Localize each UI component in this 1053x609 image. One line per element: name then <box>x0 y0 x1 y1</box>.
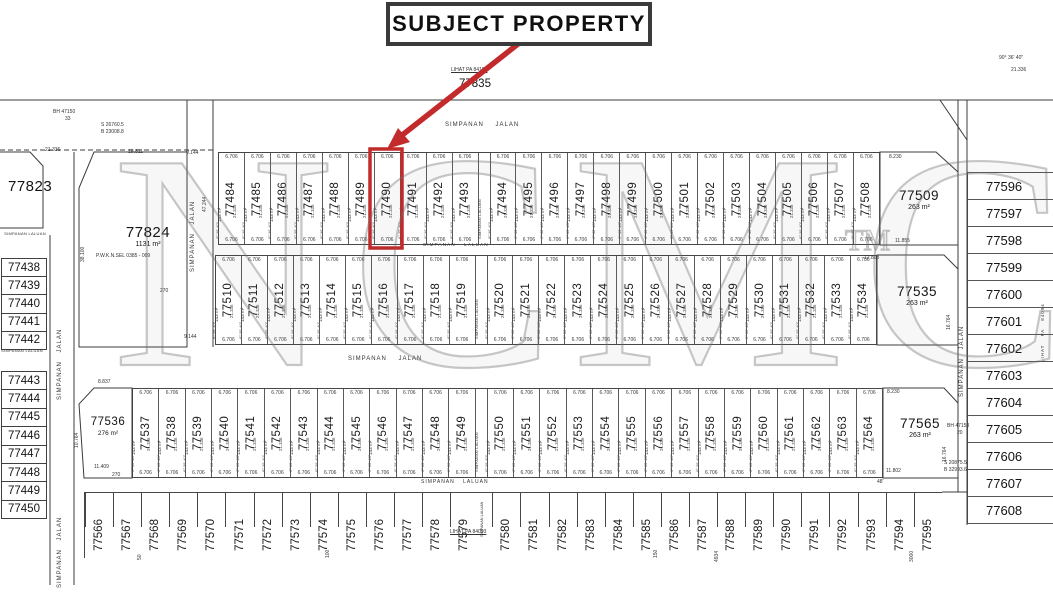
lot-cell: 77592 <box>829 493 857 558</box>
lot-width-top: 6.706 <box>488 257 513 263</box>
lot-number: 77580 <box>500 519 512 551</box>
lot-77823-label: 77823 <box>2 178 88 195</box>
map-annotation: BH 47153 <box>947 423 969 429</box>
lot-cell: 77595 <box>914 493 942 558</box>
map-annotation: 8.230 <box>887 389 900 395</box>
lot-tick <box>633 493 634 527</box>
lot-depth: 21.336 <box>817 438 822 451</box>
lot-width-top: 6.706 <box>857 390 882 396</box>
left-lane-label-b: SIMPANAN LALUAN <box>0 348 44 354</box>
right-column-lot: 77606 <box>967 442 1053 470</box>
map-annotation: LIHAT PA 84101 <box>451 67 487 73</box>
lot-number: 77590 <box>781 519 793 551</box>
lot-width-bottom: 6.706 <box>672 237 697 243</box>
lot-width-top: 6.706 <box>725 390 750 396</box>
lot-tick <box>661 493 662 527</box>
lot-width-top: 6.706 <box>398 257 423 263</box>
lot-width-top: 6.706 <box>591 257 616 263</box>
lot-area: 143 m² <box>236 441 241 455</box>
lot-width-bottom: 6.706 <box>698 237 723 243</box>
lot-width-top: 6.706 <box>593 390 618 396</box>
lot-tick <box>745 493 746 527</box>
right-column-lot: 77603 <box>967 361 1053 389</box>
lot-cell: 77584 <box>605 493 633 558</box>
lot-tick <box>85 493 86 527</box>
lot-number: 77606 <box>986 449 1022 464</box>
map-annotation: S 26760.5 <box>101 122 124 128</box>
left-column-lot: 77444 <box>1 389 47 408</box>
lot-depth: 21.336 <box>580 438 585 451</box>
lot-area: 143 m² <box>745 308 750 322</box>
lot-depth: 21.336 <box>385 305 390 318</box>
subject-property-label: SUBJECT PROPERTY <box>392 11 646 37</box>
lot-tick <box>829 493 830 527</box>
lot-width-top: 6.706 <box>776 154 801 160</box>
lot-number: 77571 <box>234 519 246 551</box>
lot-width-top: 6.706 <box>542 154 567 160</box>
map-annotation: 21.336 <box>1011 67 1026 73</box>
lot-width-top: 6.706 <box>750 154 775 160</box>
lot-cell: 77582 <box>549 493 577 558</box>
lot-area: 143 m² <box>849 308 854 322</box>
lot-number: 77582 <box>557 519 569 551</box>
lot-tick <box>577 493 578 527</box>
lot-depth: 21.336 <box>146 438 151 451</box>
lot-cell: 77586 <box>661 493 689 558</box>
lot-strip-row3: 6.70677537143 m²21.3366° 35' 40"6.7066.7… <box>132 388 883 478</box>
lot-width-top: 6.706 <box>619 390 644 396</box>
lot-width-top: 6.706 <box>773 257 798 263</box>
lot-cell: 6.70677547143 m²21.3366° 35' 40"6.706 <box>397 389 423 477</box>
lot-cell: 6.70677555143 m²21.3366° 35' 40"6.706 <box>619 389 645 477</box>
lot-number: 77585 <box>641 519 653 551</box>
map-annotation: 21.336 <box>45 147 60 153</box>
lot-width-bottom: 6.706 <box>594 237 619 243</box>
lot-depth: 21.336 <box>527 438 532 451</box>
lot-depth: 21.336 <box>526 305 531 318</box>
lot-area: 143 m² <box>292 308 297 322</box>
lot-number: 77603 <box>986 368 1022 383</box>
lot-number: 77586 <box>669 519 681 551</box>
lot-area: 143 m² <box>184 441 189 455</box>
lot-number: 77581 <box>528 519 540 551</box>
lot-depth: 21.336 <box>763 205 768 218</box>
lot-depth: 21.336 <box>307 305 312 318</box>
lot-width-top: 6.706 <box>491 154 516 160</box>
lot-width-bottom: 6.706 <box>238 470 263 476</box>
left-column-lot: 77440 <box>1 294 47 313</box>
lot-width-top: 6.706 <box>133 390 158 396</box>
lot-area: 143 m² <box>644 208 649 222</box>
lot-tick <box>689 493 690 527</box>
lot-width-top: 6.706 <box>427 154 452 160</box>
lot-depth: 21.336 <box>554 438 559 451</box>
lane-label-2: SIMPANAN LALUAN <box>421 479 489 485</box>
lot-width-top: 6.706 <box>747 257 772 263</box>
road-label-top: SIMPANAN JALAN <box>445 122 519 128</box>
lot-depth: 21.336 <box>630 305 635 318</box>
lot-width-top: 6.706 <box>513 257 538 263</box>
lot-width-bottom: 6.706 <box>646 237 671 243</box>
lot-number: 77448 <box>8 467 40 479</box>
lot-width-top: 6.706 <box>539 257 564 263</box>
lot-area: 143 m² <box>723 441 728 455</box>
lot-number: 77579 <box>458 519 470 551</box>
plan-ref-vertical: LIHAT PA 84094 <box>1040 303 1045 362</box>
lot-depth: 21.336 <box>812 305 817 318</box>
lot-area: 143 m² <box>395 441 400 455</box>
lot-area: 143 m² <box>670 441 675 455</box>
lot-cell: 77580 <box>492 493 520 558</box>
lot-area: 143 m² <box>243 208 248 222</box>
left-column-lot: 77447 <box>1 445 47 464</box>
lot-area: 143 m² <box>615 308 620 322</box>
lot-width-top: 6.706 <box>450 257 475 263</box>
lot-depth: 21.336 <box>844 438 849 451</box>
lot-cell: 6.70677534143 m²21.3366° 35' 40"6.706 <box>851 256 877 344</box>
lot-strip-bottom: 7756677567775687756977570775717757277573… <box>84 492 942 558</box>
right-column-lot: 77605 <box>967 415 1053 443</box>
lot-number: 77601 <box>986 314 1022 329</box>
lot-depth: 21.336 <box>284 205 289 218</box>
lot-depth: 21.336 <box>255 305 260 318</box>
lane-label: SIMPANAN LALUAN <box>478 199 482 239</box>
lot-cell: 77579 <box>450 493 478 558</box>
lot-area: 143 m² <box>774 208 779 222</box>
lot-area: 143 m² <box>566 208 571 222</box>
lot-width-bottom: 6.706 <box>516 237 541 243</box>
lot-area: 143 m² <box>826 208 831 222</box>
lot-depth: 21.336 <box>686 438 691 451</box>
lot-77535-label: 77535 263 m² <box>877 284 957 308</box>
lot-width-top: 6.706 <box>672 154 697 160</box>
lot-depth: 21.336 <box>737 205 742 218</box>
lot-tick <box>450 493 451 527</box>
lot-width-bottom: 6.706 <box>778 470 803 476</box>
lot-depth: 21.336 <box>738 438 743 451</box>
lot-width-top: 6.706 <box>514 390 539 396</box>
lot-area: 143 m² <box>771 308 776 322</box>
lot-depth: 21.336 <box>789 205 794 218</box>
lot-depth: 21.336 <box>604 305 609 318</box>
lot-depth: 21.336 <box>310 205 315 218</box>
map-annotation: S 20875.5 <box>944 460 967 466</box>
lot-cell: 77576 <box>366 493 394 558</box>
lot-width-bottom: 6.706 <box>542 237 567 243</box>
lot-width-bottom: 6.706 <box>646 470 671 476</box>
lot-depth: 21.336 <box>870 438 875 451</box>
lot-depth: 21.336 <box>607 205 612 218</box>
lot-depth: 21.336 <box>712 438 717 451</box>
lot-width-top: 6.706 <box>724 154 749 160</box>
lot-area: 143 m² <box>563 308 568 322</box>
lot-depth: 21.336 <box>503 205 508 218</box>
lot-width-bottom: 6.706 <box>491 237 516 243</box>
lot-width-bottom: 6.706 <box>593 470 618 476</box>
lot-width-bottom: 6.706 <box>851 337 876 343</box>
lot-width-bottom: 6.706 <box>450 337 475 343</box>
lot-tick <box>366 493 367 527</box>
lot-cell: 77594 <box>886 493 914 558</box>
lot-number: 77566 <box>93 519 105 551</box>
map-annotation: 4934 <box>714 551 720 562</box>
left-column-lot: 77439 <box>1 276 47 295</box>
lot-width-bottom: 6.706 <box>721 337 746 343</box>
lot-cell: 77574 <box>310 493 338 558</box>
lot-depth: 21.336 <box>440 205 445 218</box>
map-annotation: 11.855 <box>895 238 910 244</box>
lot-number: 77572 <box>262 519 274 551</box>
lot-depth: 21.336 <box>281 305 286 318</box>
lot-width-bottom: 6.706 <box>346 337 371 343</box>
lot-number: 77600 <box>986 287 1022 302</box>
lot-width-bottom: 6.706 <box>854 237 879 243</box>
left-column-lot: 77446 <box>1 426 47 445</box>
map-annotation: 12.803 <box>864 255 879 261</box>
left-column-lot: 77448 <box>1 463 47 482</box>
right-column-lot: 77604 <box>967 388 1053 416</box>
lot-area: 143 m² <box>447 441 452 455</box>
lot-width-top: 6.706 <box>565 257 590 263</box>
lot-width-bottom: 6.706 <box>751 470 776 476</box>
lot-area: 143 m² <box>852 208 857 222</box>
lot-number: 77449 <box>8 485 40 497</box>
lot-area: 143 m² <box>589 308 594 322</box>
lot-77835-label: 77835 <box>430 78 520 90</box>
lot-area: 143 m² <box>368 441 373 455</box>
lot-depth: 21.336 <box>765 438 770 451</box>
lot-cell: 77590 <box>773 493 801 558</box>
lot-depth: 21.336 <box>437 305 442 318</box>
map-annotation: 270 <box>112 472 120 478</box>
lot-width-bottom: 6.706 <box>488 337 513 343</box>
lot-area: 143 m² <box>512 441 517 455</box>
lot-width-bottom: 6.706 <box>725 470 750 476</box>
lot-width-top: 6.706 <box>698 154 723 160</box>
lot-depth: 21.336 <box>278 438 283 451</box>
lot-width-bottom: 6.706 <box>539 337 564 343</box>
lot-area: 143 m² <box>131 441 136 455</box>
lot-width-top: 6.706 <box>212 390 237 396</box>
lot-width-top: 6.706 <box>216 257 241 263</box>
map-annotation: 9.144 <box>184 334 197 340</box>
lot-tick <box>858 493 859 527</box>
lot-area: 143 m² <box>486 441 491 455</box>
map-annotation: 48' <box>877 479 884 485</box>
lot-number: 77567 <box>121 519 133 551</box>
lot-tick <box>197 493 198 527</box>
subject-arrow <box>387 44 518 149</box>
lot-number: 77444 <box>8 393 40 405</box>
lot-depth: 21.336 <box>682 305 687 318</box>
lot-depth: 21.336 <box>436 438 441 451</box>
lot-area: 143 m² <box>617 441 622 455</box>
lot-width-top: 6.706 <box>669 257 694 263</box>
map-annotation: 10.764 <box>74 433 80 448</box>
cadastral-map: SUBJECT PROPERTY 77835 SIMPANAN JALAN SI… <box>0 0 1053 609</box>
left-column-lot: 77438 <box>1 258 47 277</box>
lot-width-top: 6.706 <box>320 257 345 263</box>
map-annotation: 20 <box>957 430 963 436</box>
lot-area: 143 m² <box>318 308 323 322</box>
lot-depth: 21.336 <box>463 305 468 318</box>
lot-number: 77604 <box>986 395 1022 410</box>
lot-width-top: 6.706 <box>672 390 697 396</box>
lot-width-top: 6.706 <box>617 257 642 263</box>
lot-width-bottom: 6.706 <box>513 337 538 343</box>
lot-width-bottom: 6.706 <box>699 470 724 476</box>
lot-area: 143 m² <box>802 441 807 455</box>
lot-cell: 77587 <box>689 493 717 558</box>
lot-depth: 21.336 <box>305 438 310 451</box>
lot-tick <box>773 493 774 527</box>
lot-number: 77575 <box>346 519 358 551</box>
lot-area: 143 m² <box>373 208 378 222</box>
lot-area: 143 m² <box>644 441 649 455</box>
lot-width-top: 6.706 <box>643 257 668 263</box>
lot-depth: 21.336 <box>225 438 230 451</box>
map-annotation: 8.837 <box>98 379 111 385</box>
lot-width-bottom: 6.706 <box>617 337 642 343</box>
lot-tick <box>801 493 802 527</box>
lot-cell: 77593 <box>858 493 886 558</box>
lot-cell: 77575 <box>338 493 366 558</box>
lot-cell: 77591 <box>801 493 829 558</box>
lot-width-top: 6.706 <box>372 257 397 263</box>
lot-width-top: 6.706 <box>370 390 395 396</box>
lot-depth: 21.336 <box>708 305 713 318</box>
subject-property-callout: SUBJECT PROPERTY <box>386 2 652 46</box>
lot-width-top: 6.706 <box>344 390 369 396</box>
lot-width-top: 6.706 <box>401 154 426 160</box>
lot-width-bottom: 6.706 <box>265 470 290 476</box>
lot-width-bottom: 6.706 <box>449 470 474 476</box>
lot-width-bottom: 6.706 <box>133 470 158 476</box>
lot-cell: 6.70677519143 m²21.3366° 35' 40"6.706 <box>450 256 476 344</box>
lot-cell: 6.70677544143 m²21.3366° 35' 40"6.706 <box>318 389 344 477</box>
lot-depth: 21.336 <box>388 205 393 218</box>
lot-area: 143 m² <box>347 208 352 222</box>
lot-width-top: 6.706 <box>828 154 853 160</box>
lot-depth: 21.336 <box>711 205 716 218</box>
lot-depth: 21.336 <box>359 305 364 318</box>
lot-width-top: 6.706 <box>268 257 293 263</box>
lot-depth: 21.336 <box>410 438 415 451</box>
lot-width-top: 6.706 <box>242 257 267 263</box>
lot-depth: 21.336 <box>578 305 583 318</box>
lot-width-bottom: 6.706 <box>318 470 343 476</box>
lot-width-top: 6.706 <box>346 257 371 263</box>
lot-width-bottom: 6.706 <box>488 470 513 476</box>
lot-width-bottom: 6.706 <box>669 337 694 343</box>
lot-width-top: 6.706 <box>423 390 448 396</box>
lot-width-top: 6.706 <box>186 390 211 396</box>
lot-width-top: 6.706 <box>453 154 478 160</box>
lot-number: 77608 <box>986 503 1022 518</box>
lot-cell: 77583 <box>577 493 605 558</box>
lot-cell: 77588 <box>717 493 745 558</box>
lot-tick <box>282 493 283 527</box>
lot-width-top: 6.706 <box>646 390 671 396</box>
lot-number: 77596 <box>986 179 1022 194</box>
lot-area: 143 m² <box>289 441 294 455</box>
lot-area: 143 m² <box>748 208 753 222</box>
left-lane-label-a: SIMPANAN LALUAN <box>3 231 47 237</box>
road-label-vertical: SIMPANAN JALAN <box>190 201 196 272</box>
lot-area: 143 m² <box>316 441 321 455</box>
lot-width-top: 6.706 <box>830 390 855 396</box>
lot-width-bottom: 6.706 <box>291 470 316 476</box>
lot-tick <box>422 493 423 527</box>
lot-depth: 21.336 <box>656 305 661 318</box>
lot-depth: 21.336 <box>786 305 791 318</box>
map-annotation: 16.764 <box>946 315 952 330</box>
lot-area: 143 m² <box>295 208 300 222</box>
right-column-lot: 77596 <box>967 172 1053 200</box>
lot-width-bottom: 6.706 <box>370 470 395 476</box>
road-label-vertical: SIMPANAN JALAN <box>959 326 965 397</box>
lot-number: 77607 <box>986 476 1022 491</box>
lot-width-bottom: 6.706 <box>568 237 593 243</box>
lot-area: 143 m² <box>217 208 222 222</box>
lot-area: 143 m² <box>448 308 453 322</box>
lot-area: 143 m² <box>425 208 430 222</box>
lot-area: 143 m² <box>749 441 754 455</box>
lot-tick <box>605 493 606 527</box>
lot-cell: 77573 <box>282 493 310 558</box>
lot-width-top: 6.706 <box>238 390 263 396</box>
lot-77565-label: 77565 263 m² <box>884 416 956 440</box>
lot-number: 77438 <box>8 262 40 274</box>
lot-cell: 6.70677558143 m²21.3366° 35' 40"6.706 <box>699 389 725 477</box>
lot-width-top: 6.706 <box>349 154 374 160</box>
lot-width-bottom: 6.706 <box>375 237 400 243</box>
lot-number: 77569 <box>177 519 189 551</box>
lot-tick <box>886 493 887 527</box>
lot-depth: 21.336 <box>552 305 557 318</box>
lot-cell: 6.70677564143 m²21.3366° 35' 40"6.706 <box>857 389 883 477</box>
lot-area: 143 m² <box>693 308 698 322</box>
lot-width-top: 6.706 <box>397 390 422 396</box>
lot-depth: 21.336 <box>357 438 362 451</box>
lot-depth: 21.336 <box>838 305 843 318</box>
lot-width-bottom: 6.706 <box>401 237 426 243</box>
lot-tick <box>914 493 915 527</box>
lot-depth: 21.336 <box>555 205 560 218</box>
lot-depth: 21.336 <box>815 205 820 218</box>
map-annotation: 150 <box>653 550 659 558</box>
lot-number: 77583 <box>585 519 597 551</box>
lot-number: 77578 <box>430 519 442 551</box>
lot-depth: 21.336 <box>466 205 471 218</box>
lot-depth: 21.336 <box>734 305 739 318</box>
lot-area: 143 m² <box>538 441 543 455</box>
lot-depth: 21.336 <box>414 205 419 218</box>
lot-depth: 21.336 <box>384 438 389 451</box>
lot-width-top: 6.706 <box>265 390 290 396</box>
lot-depth: 21.336 <box>501 438 506 451</box>
map-annotation: 11.409 <box>94 464 109 470</box>
lot-cell: 77570 <box>197 493 225 558</box>
lot-number: 77588 <box>725 519 737 551</box>
map-annotation: LIHAT PA 84093 <box>450 529 486 535</box>
lot-width-bottom: 6.706 <box>619 470 644 476</box>
lot-width-bottom: 6.706 <box>857 470 882 476</box>
lot-area: 143 m² <box>800 208 805 222</box>
lot-tick <box>492 493 493 527</box>
lot-77824-label: 77824 1131 m² <box>106 224 190 249</box>
lane-label: SIMPANAN LALUAN <box>475 432 479 472</box>
